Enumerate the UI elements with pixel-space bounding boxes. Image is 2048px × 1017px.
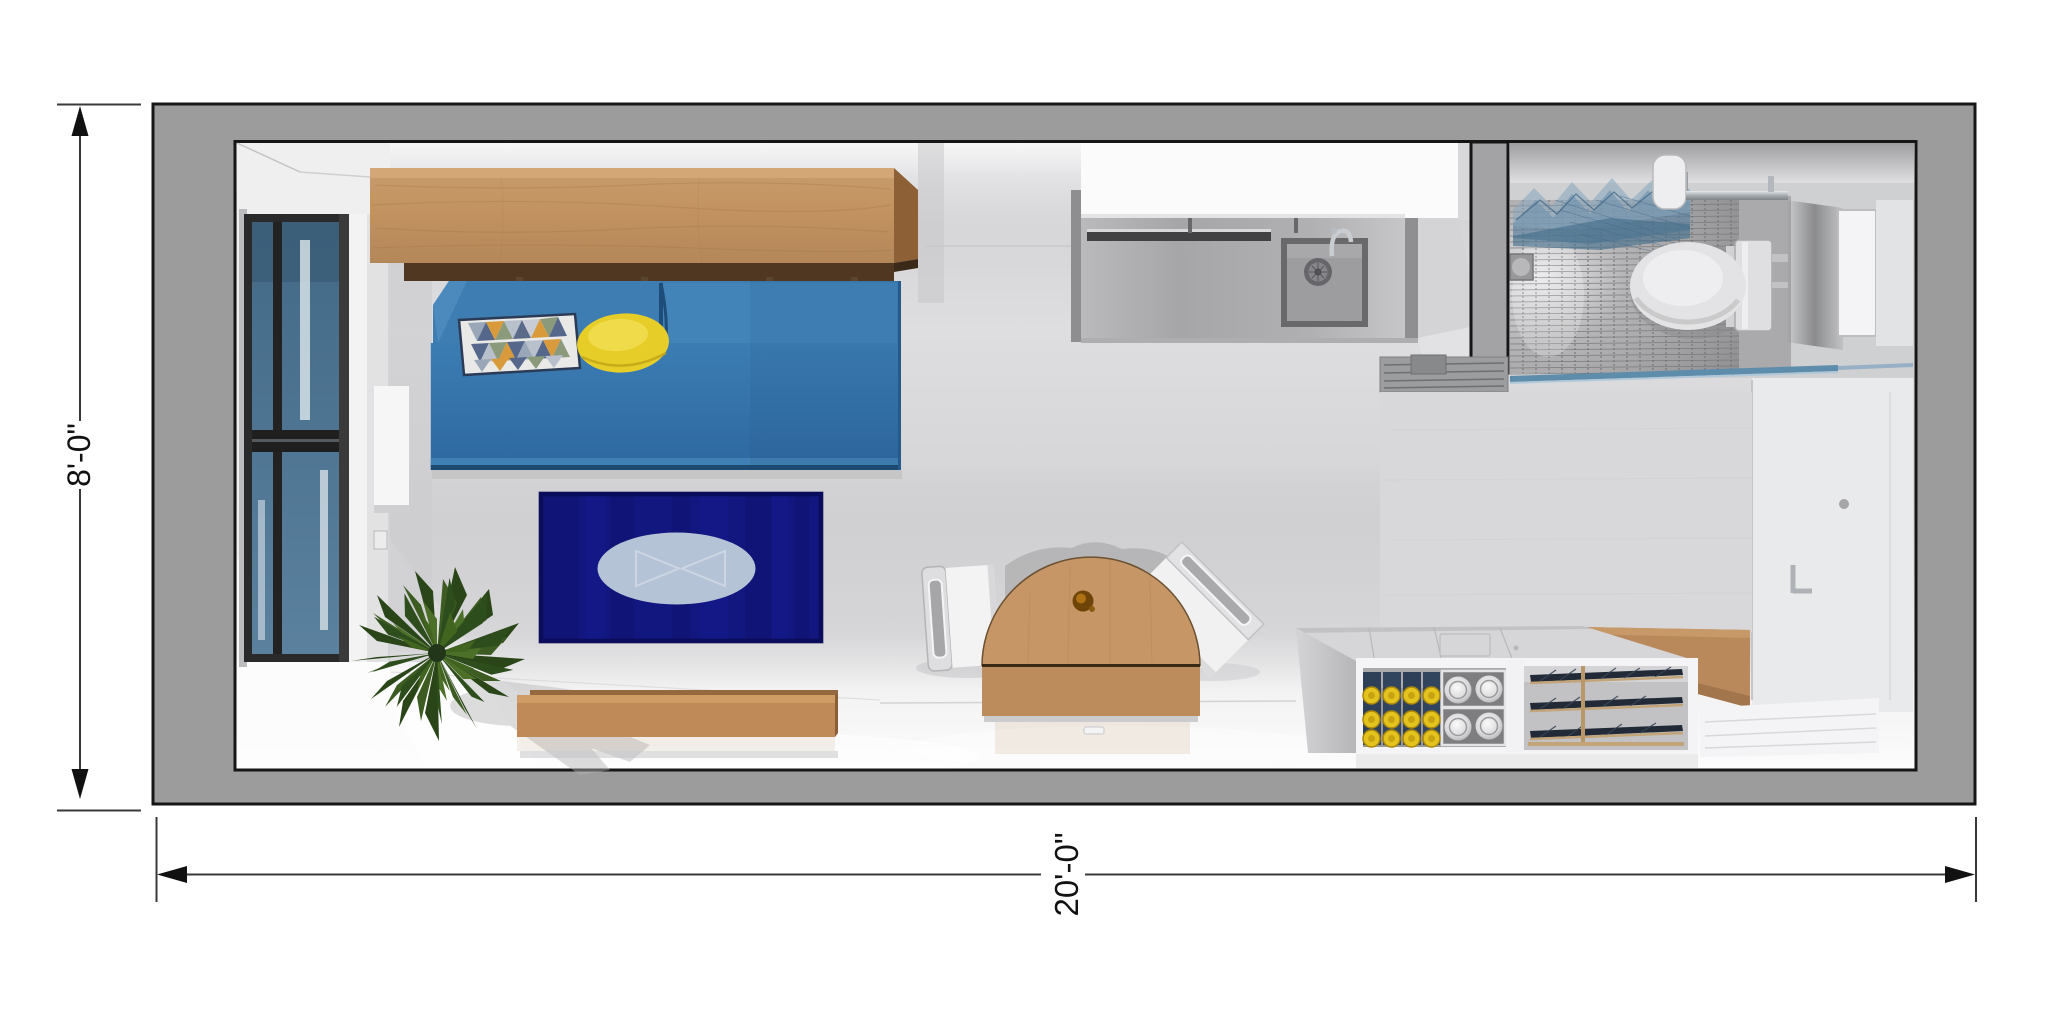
svg-text:8'-0": 8'-0" [61, 423, 97, 487]
svg-text:20'-0": 20'-0" [1048, 832, 1085, 916]
